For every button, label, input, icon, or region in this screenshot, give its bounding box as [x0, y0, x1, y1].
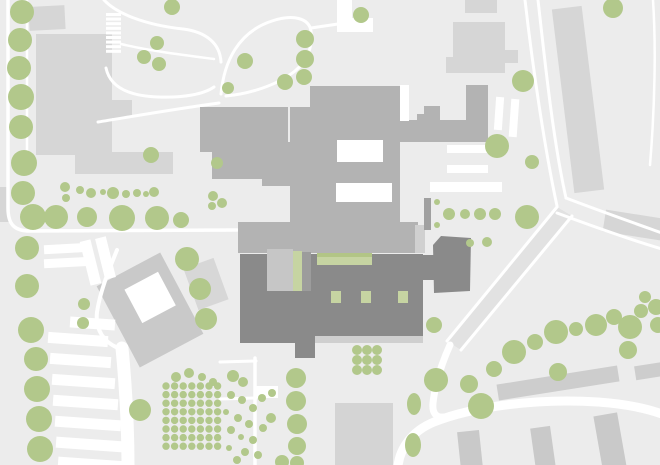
campus-site-plan-svg — [0, 0, 660, 465]
site-plan-canvas — [0, 0, 660, 465]
